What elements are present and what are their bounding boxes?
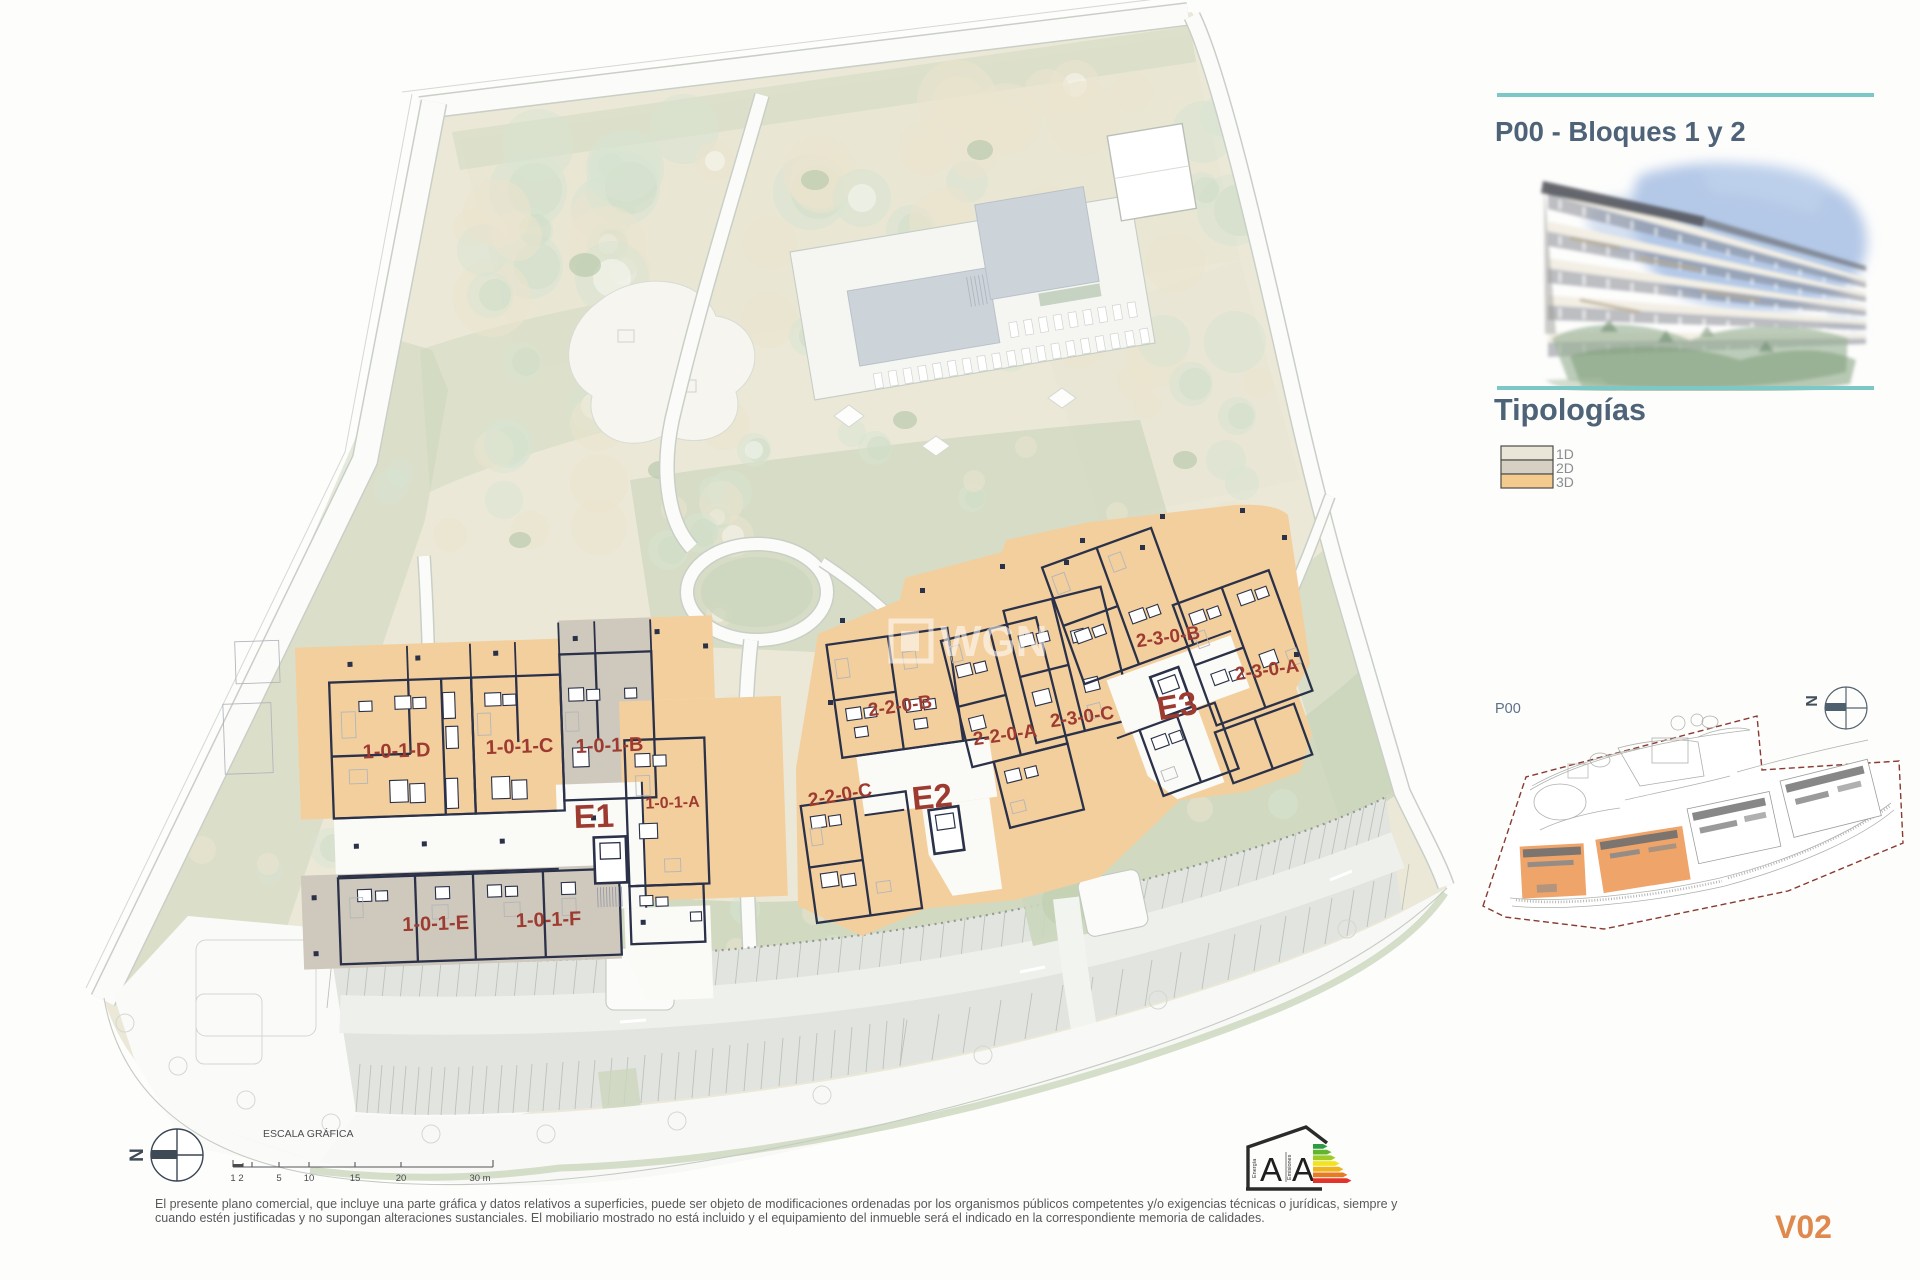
svg-text:A: A (1260, 1151, 1282, 1188)
svg-text:1-0-1-E: 1-0-1-E (402, 912, 469, 936)
svg-text:15: 15 (350, 1173, 361, 1184)
svg-text:P00: P00 (1495, 701, 1521, 717)
svg-text:Energía: Energía (1252, 1158, 1258, 1178)
svg-text:1-0-1-A: 1-0-1-A (645, 794, 700, 813)
svg-text:3D: 3D (1556, 474, 1574, 490)
svg-text:Emisiones: Emisiones (1287, 1154, 1293, 1180)
svg-text:ESCALA GRÁFICA: ESCALA GRÁFICA (263, 1127, 353, 1140)
svg-text:10: 10 (304, 1173, 315, 1184)
svg-text:N: N (1804, 695, 1821, 707)
svg-text:El presente plano comercial, q: El presente plano comercial, que incluye… (155, 1197, 1398, 1211)
svg-text:A: A (1292, 1151, 1314, 1188)
svg-text:E1: E1 (573, 797, 615, 835)
svg-text:N: N (127, 1148, 148, 1162)
svg-text:5: 5 (276, 1173, 281, 1184)
svg-text:V02: V02 (1775, 1209, 1832, 1245)
svg-text:Tipologías: Tipologías (1494, 393, 1646, 427)
svg-text:P00 - Bloques 1 y 2: P00 - Bloques 1 y 2 (1495, 116, 1746, 147)
svg-text:1-0-1-B: 1-0-1-B (575, 734, 644, 758)
svg-text:1 2: 1 2 (230, 1173, 243, 1184)
svg-text:1-0-1-D: 1-0-1-D (362, 739, 431, 763)
svg-text:E2: E2 (910, 776, 954, 817)
svg-text:WGN: WGN (940, 617, 1048, 666)
svg-text:1-0-1-F: 1-0-1-F (515, 908, 581, 932)
svg-text:E3: E3 (1154, 684, 1200, 727)
svg-text:30 m: 30 m (469, 1173, 490, 1184)
svg-text:20: 20 (396, 1173, 407, 1184)
svg-text:1-0-1-C: 1-0-1-C (485, 735, 554, 759)
svg-text:cuando estén justificadas y no: cuando estén justificadas y no supongan … (155, 1211, 1265, 1225)
